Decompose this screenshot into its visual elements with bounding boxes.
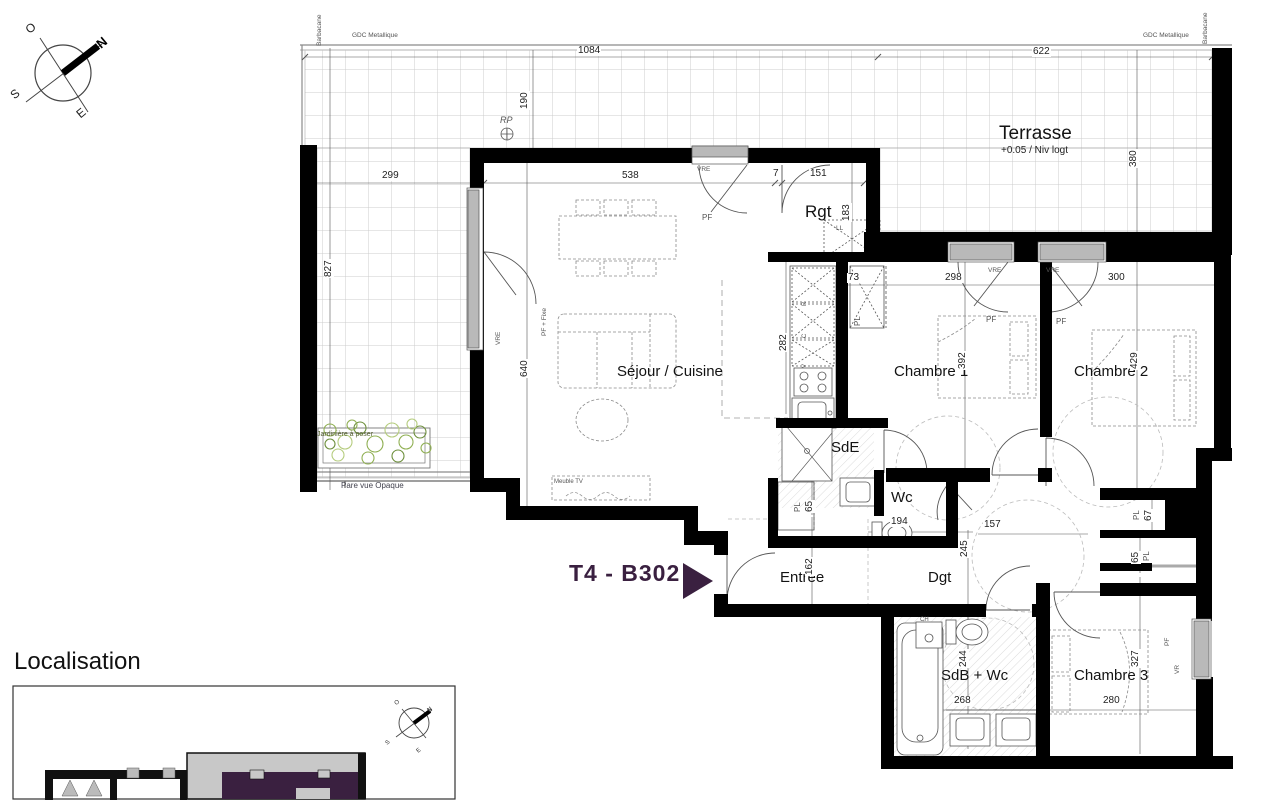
jardiniere-label: Jardinière à poser: [317, 431, 373, 438]
pl-67-label: PL: [1133, 510, 1141, 520]
pf-chambre2-label: PF: [1056, 318, 1066, 326]
pf-chambre3-label: PF: [1165, 638, 1172, 646]
ll-label: LL: [836, 226, 843, 233]
dim-kitchen-height: 282: [779, 333, 789, 352]
pare-vue-label: Pare vue Opaque: [341, 482, 404, 490]
dim-rgt-height: 183: [842, 203, 852, 222]
unit-arrow-icon: [683, 563, 713, 599]
barbacane-left-label: Barbacane: [317, 15, 324, 46]
rp-label: RP: [500, 116, 513, 125]
room-wc-label: Wc: [891, 490, 913, 505]
dim-closet-65a: 65: [805, 500, 815, 513]
dim-sdb-height: 244: [959, 649, 969, 668]
pf-fixe-label: PF + Fixe: [542, 308, 549, 336]
dim-closet-67: 67: [1144, 509, 1154, 522]
kitchen-v-label: V: [802, 364, 808, 368]
dim-chambre3-width: 280: [1102, 696, 1121, 706]
dim-sejour-height: 640: [520, 359, 530, 378]
kitchen-c-label: C: [802, 334, 808, 338]
room-sejour-label: Séjour / Cuisine: [617, 364, 723, 379]
pf-chambre1-label: PF: [986, 316, 996, 324]
compass-rose: [26, 38, 102, 112]
gdc-left-label: GDC Metallique: [352, 33, 398, 40]
dim-dgt-height: 245: [960, 539, 970, 558]
vre-chambre1-label: VRE: [988, 268, 1001, 275]
dim-closet-65b: 65: [1131, 551, 1141, 564]
dim-wall-7: 7: [772, 169, 780, 179]
dim-chambre2-width: 300: [1107, 273, 1126, 283]
dim-terrasse-left-height: 827: [324, 259, 334, 278]
pl-chambre1-label: PL: [854, 316, 862, 326]
dim-dgt-width: 157: [983, 520, 1002, 530]
dim-terrasse-depth: 190: [520, 91, 530, 110]
room-rgt-label: Rgt: [805, 203, 831, 220]
terrasse-level-label: +0.05 / Niv logt: [1001, 146, 1068, 156]
meuble-tv-label: Meuble TV: [554, 479, 583, 485]
dim-terrasse-width-1: 1084: [577, 46, 601, 56]
dim-terrasse-width-2: 622: [1032, 47, 1051, 57]
dim-entree-height: 162: [805, 557, 815, 576]
ch-label: CH: [920, 617, 929, 623]
room-entree-label: Entrée: [780, 570, 824, 585]
dim-closet-73: 73: [847, 273, 860, 283]
barbacane-right-label: Barbacane: [1203, 13, 1210, 44]
dim-sdb-width: 268: [953, 696, 972, 706]
gdc-right-label: GDC Metallique: [1143, 33, 1189, 40]
localisation-title: Localisation: [14, 650, 141, 674]
vre-chambre2-label: VRE: [1046, 268, 1059, 275]
terrace-grid: [305, 50, 1212, 478]
dim-chambre2-height: 429: [1130, 351, 1140, 370]
vre-sejour-window-label: VRE: [496, 332, 503, 345]
unit-label: T4 - B302: [569, 562, 680, 585]
room-dgt-label: Dgt: [928, 570, 951, 585]
dim-chambre3-height: 327: [1131, 649, 1141, 668]
vre-terrace-door-label: VRE: [697, 167, 710, 174]
dim-terrasse-left-width: 299: [381, 171, 400, 181]
dim-chambre1-height: 392: [958, 351, 968, 370]
architectural-plan: N O S E Barbacane GDC Metallique GDC Met…: [0, 0, 1274, 800]
pf-terrace-door-label: PF: [702, 214, 712, 222]
dim-wc-width: 194: [890, 517, 909, 527]
dim-terrasse-right-depth: 380: [1129, 149, 1139, 168]
vr-chambre3-label: VR: [1175, 665, 1182, 674]
room-sdb-label: SdB + Wc: [941, 668, 1008, 683]
room-sde-label: SdE: [831, 440, 859, 455]
pl-65-label: PL: [1143, 551, 1151, 561]
kitchen-r-label: R: [802, 302, 808, 306]
pl-wc-label: PL: [794, 502, 802, 512]
dim-chambre1-width: 298: [944, 273, 963, 283]
dim-rgt-width: 151: [809, 169, 828, 179]
room-chambre3-label: Chambre 3: [1074, 668, 1148, 683]
dim-sejour-width: 538: [621, 171, 640, 181]
room-terrasse-label: Terrasse: [999, 124, 1072, 143]
